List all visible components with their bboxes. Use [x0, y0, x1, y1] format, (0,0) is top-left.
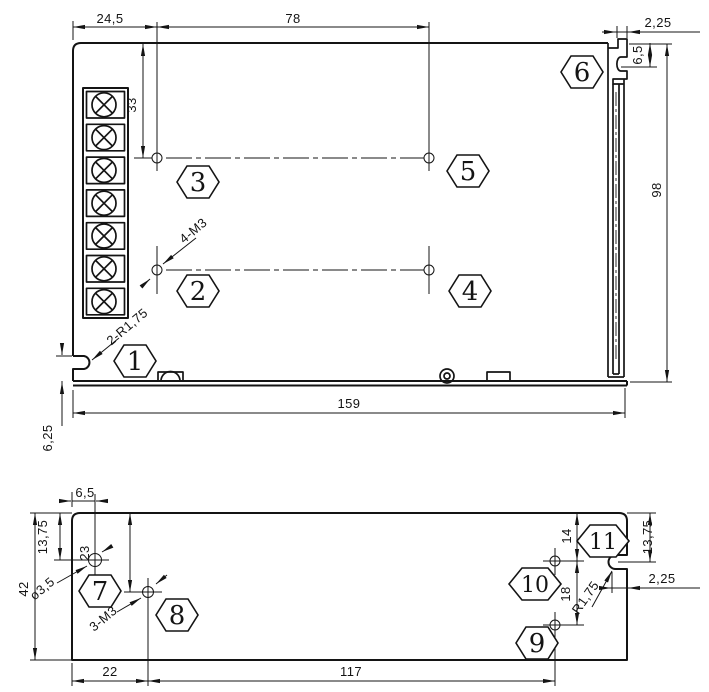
dim-117: 117 [340, 664, 362, 679]
bottom-view: 6,5 13,75 23 42 14 18 13,75 2,25 22 117 … [16, 485, 700, 686]
dim-98: 98 [649, 182, 664, 197]
top-view: 24,5 78 2,25 6,5 33 98 159 6,25 4-M3 2-R… [40, 11, 700, 451]
label-dia-3-5: ø3,5 [27, 574, 58, 603]
terminal-screw [87, 92, 125, 119]
svg-text:7: 7 [92, 577, 109, 607]
dim-6-5-bottom: 6,5 [75, 485, 94, 500]
dim-6-5-top: 6,5 [630, 45, 645, 64]
svg-text:11: 11 [589, 530, 617, 555]
callout-4: 4 [449, 275, 491, 307]
drawing-canvas: 24,5 78 2,25 6,5 33 98 159 6,25 4-M3 2-R… [0, 0, 709, 692]
dim-18: 18 [558, 586, 573, 601]
terminal-screw [87, 223, 125, 250]
mounting-holes [81, 494, 584, 686]
callout-3: 3 [177, 166, 219, 198]
terminal-screw [87, 190, 125, 217]
dim-2-25-top: 2,25 [645, 15, 672, 30]
dimension-drawing: 24,5 78 2,25 6,5 33 98 159 6,25 4-M3 2-R… [0, 0, 709, 692]
svg-text:6: 6 [574, 58, 591, 88]
svg-text:2: 2 [190, 277, 207, 307]
side-rail-profile [608, 39, 627, 377]
dim-78: 78 [285, 11, 300, 26]
terminal-screw [87, 256, 125, 283]
enclosure-outline [73, 43, 627, 386]
dim-13-75-left: 13,75 [35, 520, 50, 555]
svg-text:8: 8 [169, 601, 186, 631]
dim-14: 14 [559, 528, 574, 543]
terminal-screw [87, 124, 125, 151]
svg-text:4: 4 [462, 277, 479, 307]
dim-6-25: 6,25 [40, 425, 55, 452]
dim-13-75-right: 13,75 [640, 520, 655, 555]
svg-text:9: 9 [529, 629, 546, 659]
svg-text:3: 3 [190, 168, 207, 198]
callout-5: 5 [447, 155, 489, 187]
dim-23: 23 [77, 545, 92, 560]
callout-8: 8 [156, 599, 198, 631]
tab-feature [487, 372, 510, 381]
dim-159: 159 [338, 396, 361, 411]
dim-33: 33 [124, 97, 139, 112]
terminal-screw [87, 288, 125, 315]
callout-2: 2 [177, 275, 219, 307]
callout-6: 6 [561, 56, 603, 88]
svg-text:5: 5 [460, 157, 477, 187]
svg-text:10: 10 [521, 573, 549, 598]
svg-text:1: 1 [127, 347, 144, 377]
terminal-block [83, 88, 128, 318]
callout-1: 1 [114, 345, 156, 377]
terminal-screw [87, 157, 125, 184]
callout-9: 9 [516, 627, 558, 659]
dim-22: 22 [102, 664, 117, 679]
callout-11: 11 [577, 525, 629, 557]
dim-24-5: 24,5 [97, 11, 124, 26]
dim-2-25-bottom: 2,25 [649, 571, 676, 586]
callout-10: 10 [509, 568, 561, 600]
callout-7: 7 [79, 575, 121, 607]
label-4-m3: 4-M3 [176, 215, 210, 247]
